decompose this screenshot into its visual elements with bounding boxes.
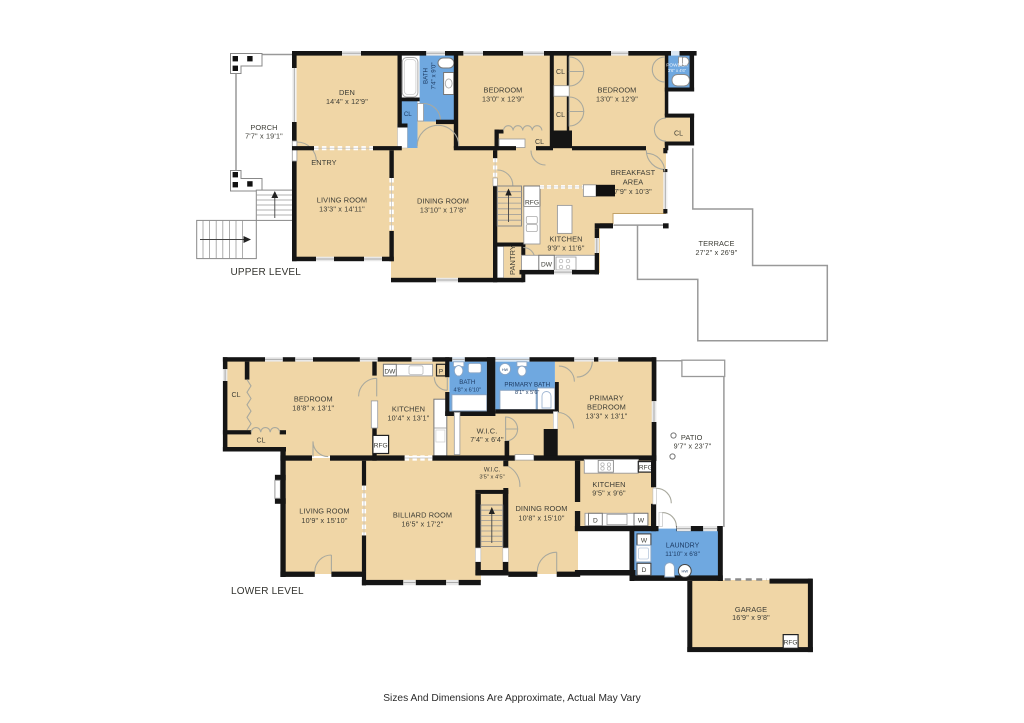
- svg-text:CL: CL: [535, 139, 544, 146]
- svg-text:16'9" x 9'8": 16'9" x 9'8": [732, 613, 770, 622]
- svg-text:W: W: [641, 538, 648, 545]
- svg-text:PRIMARY BATH: PRIMARY BATH: [504, 382, 550, 389]
- svg-text:8'1" x 5'6": 8'1" x 5'6": [515, 390, 539, 396]
- svg-text:BEDROOM: BEDROOM: [484, 86, 523, 95]
- svg-text:LIVING ROOM: LIVING ROOM: [299, 507, 349, 516]
- svg-text:W.I.C.: W.I.C.: [484, 468, 501, 474]
- svg-text:9'9" x 11'6": 9'9" x 11'6": [547, 244, 585, 253]
- svg-text:AREA: AREA: [623, 178, 644, 187]
- svg-text:BATH: BATH: [423, 68, 430, 84]
- svg-text:CL: CL: [232, 392, 241, 399]
- svg-text:LOWER LEVEL: LOWER LEVEL: [231, 586, 304, 597]
- svg-text:HW: HW: [681, 569, 688, 574]
- svg-text:HW: HW: [502, 368, 509, 372]
- svg-text:P: P: [439, 368, 444, 375]
- svg-text:CL: CL: [257, 438, 266, 445]
- svg-text:Sizes And Dimensions Are Appro: Sizes And Dimensions Are Approximate, Ac…: [383, 693, 641, 704]
- svg-text:3'5" x 4'5": 3'5" x 4'5": [479, 475, 504, 481]
- svg-text:CL: CL: [556, 69, 565, 76]
- svg-text:RFG: RFG: [374, 443, 388, 450]
- svg-text:BEDROOM: BEDROOM: [598, 86, 637, 95]
- svg-text:BEDROOM: BEDROOM: [294, 395, 333, 404]
- svg-text:DINING ROOM: DINING ROOM: [515, 504, 567, 513]
- svg-text:D: D: [642, 567, 647, 574]
- svg-text:BREAKFAST: BREAKFAST: [611, 168, 656, 177]
- svg-text:13'3" x 14'11": 13'3" x 14'11": [319, 205, 365, 214]
- svg-text:DW: DW: [541, 262, 553, 269]
- svg-text:7'4" x 6'4": 7'4" x 6'4": [470, 435, 504, 444]
- svg-text:PRIMARY: PRIMARY: [589, 394, 623, 403]
- svg-text:RFG: RFG: [525, 200, 539, 207]
- svg-text:BATH: BATH: [459, 379, 475, 386]
- svg-text:PANTRY: PANTRY: [508, 245, 517, 275]
- svg-text:9'7" x 23'7": 9'7" x 23'7": [674, 442, 712, 451]
- svg-text:10'4" x 13'1": 10'4" x 13'1": [387, 414, 429, 423]
- svg-text:7'4" x 9'0": 7'4" x 9'0": [431, 62, 438, 89]
- svg-text:9'5" x 9'6": 9'5" x 9'6": [592, 489, 626, 498]
- svg-text:7'7" x 19'1": 7'7" x 19'1": [245, 132, 283, 141]
- svg-text:16'5" x 17'2": 16'5" x 17'2": [401, 520, 443, 529]
- svg-text:LAUNDRY: LAUNDRY: [666, 543, 700, 550]
- svg-text:CL: CL: [556, 112, 565, 119]
- svg-text:TERRACE: TERRACE: [698, 239, 734, 248]
- svg-text:W: W: [638, 518, 645, 525]
- svg-text:D: D: [593, 518, 598, 525]
- svg-text:3'6" x 4'6": 3'6" x 4'6": [668, 68, 687, 73]
- svg-text:11'10" x 6'8": 11'10" x 6'8": [665, 551, 700, 558]
- svg-text:LIVING ROOM: LIVING ROOM: [317, 196, 367, 205]
- svg-text:4'8" x 6'10": 4'8" x 6'10": [454, 388, 482, 394]
- svg-text:RFG: RFG: [639, 465, 653, 472]
- svg-text:DW: DW: [384, 368, 396, 375]
- svg-text:BILLIARD ROOM: BILLIARD ROOM: [393, 511, 452, 520]
- svg-text:14'4" x 12'9": 14'4" x 12'9": [326, 97, 368, 106]
- svg-text:27'2" x 26'9": 27'2" x 26'9": [695, 248, 737, 257]
- svg-text:CL: CL: [674, 131, 683, 138]
- svg-text:DINING ROOM: DINING ROOM: [417, 197, 469, 206]
- svg-text:13'0" x 12'9": 13'0" x 12'9": [596, 95, 638, 104]
- svg-text:CL: CL: [404, 111, 412, 118]
- svg-text:DEN: DEN: [339, 88, 355, 97]
- svg-text:10'8" x 15'10": 10'8" x 15'10": [518, 514, 564, 523]
- svg-text:KITCHEN: KITCHEN: [392, 405, 425, 414]
- svg-text:ENTRY: ENTRY: [311, 158, 336, 167]
- svg-text:10'9" x 15'10": 10'9" x 15'10": [301, 516, 347, 525]
- svg-text:UPPER LEVEL: UPPER LEVEL: [231, 267, 302, 278]
- svg-text:BEDROOM: BEDROOM: [587, 403, 626, 412]
- svg-text:RFG: RFG: [784, 640, 798, 647]
- svg-text:18'8" x 13'1": 18'8" x 13'1": [292, 404, 334, 413]
- svg-text:KITCHEN: KITCHEN: [549, 235, 582, 244]
- svg-text:13'0" x 12'9": 13'0" x 12'9": [482, 95, 524, 104]
- svg-text:7'9" x 10'3": 7'9" x 10'3": [614, 187, 652, 196]
- svg-text:13'10" x 17'8": 13'10" x 17'8": [420, 206, 466, 215]
- svg-text:13'3" x 13'1": 13'3" x 13'1": [585, 412, 627, 421]
